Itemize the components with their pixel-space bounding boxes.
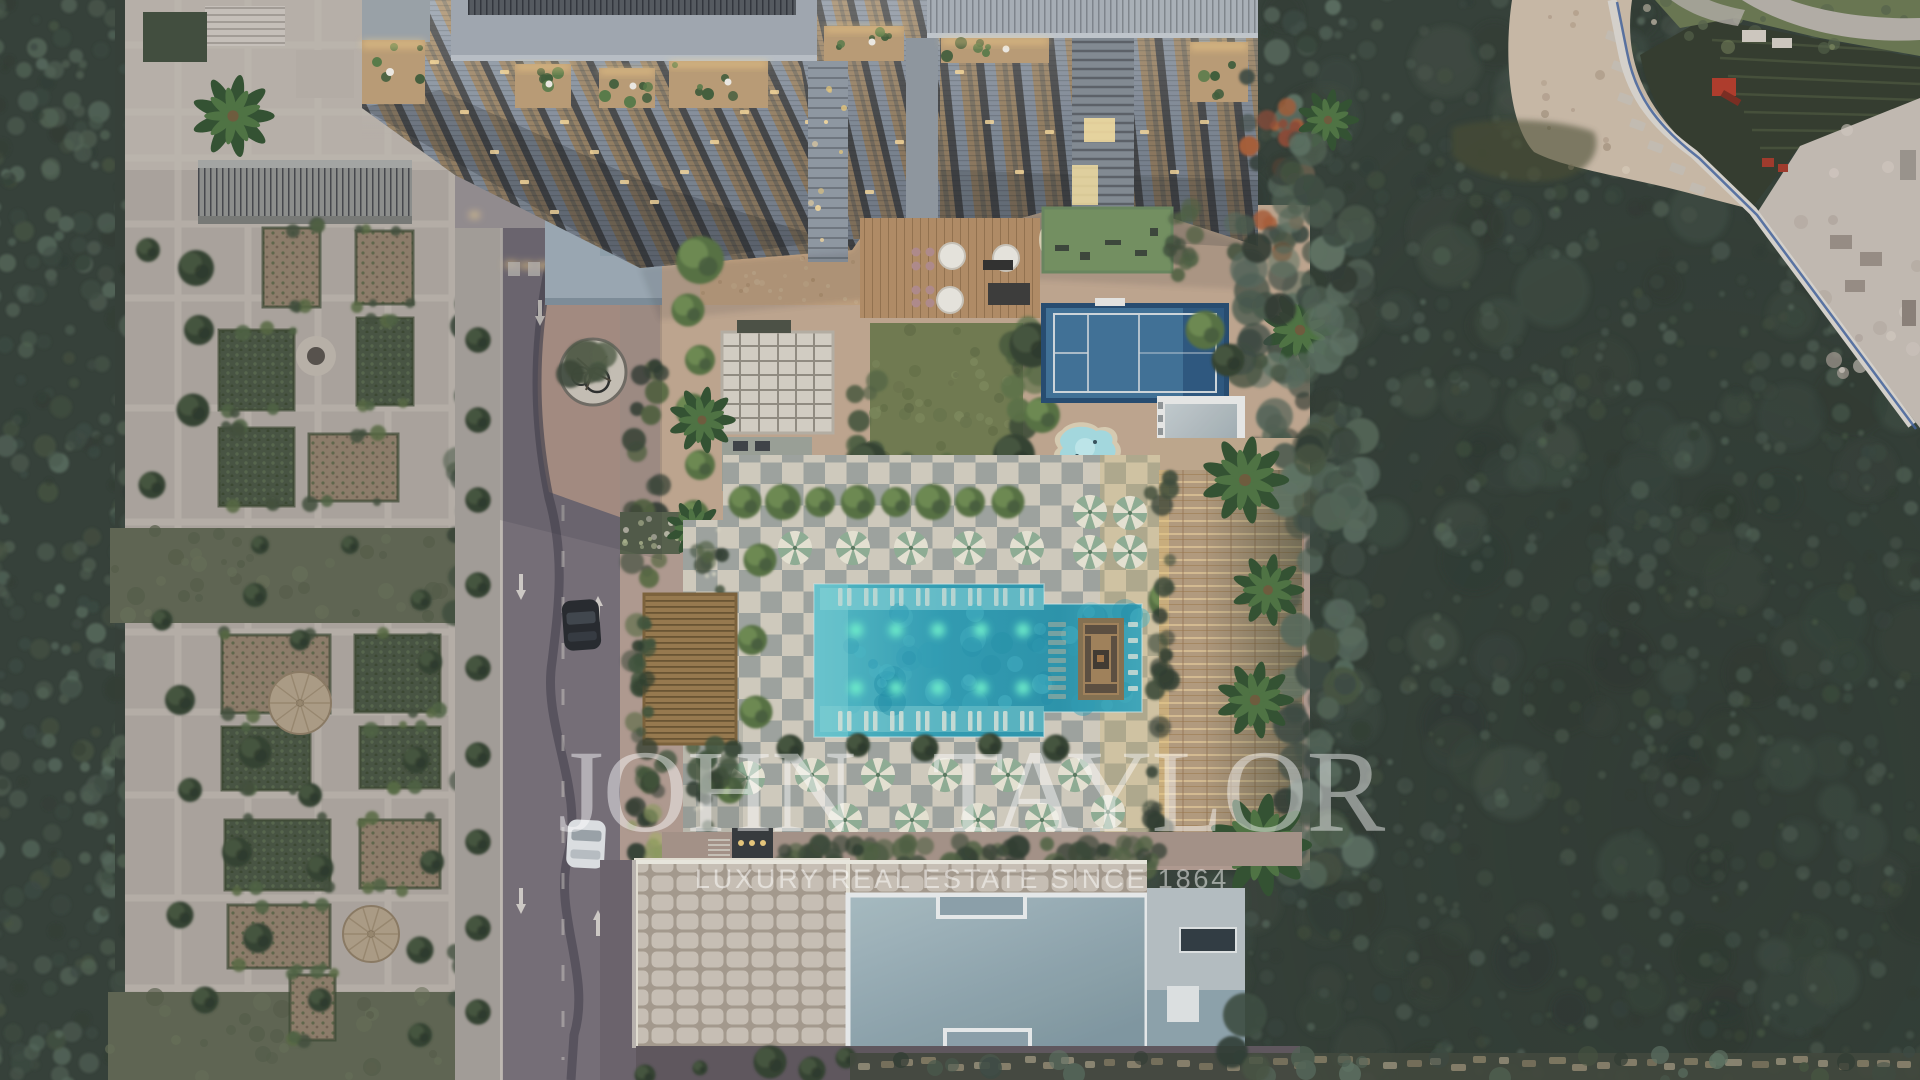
- svg-text:LUXURY REAL ESTATE SINCE 1864: LUXURY REAL ESTATE SINCE 1864: [695, 864, 1229, 894]
- svg-text:JOHN TAYLOR: JOHN TAYLOR: [558, 726, 1386, 857]
